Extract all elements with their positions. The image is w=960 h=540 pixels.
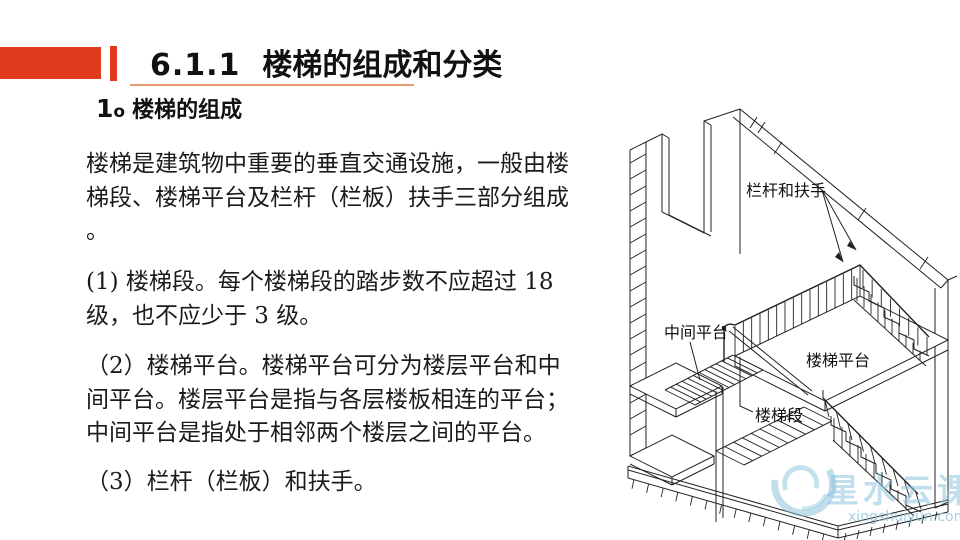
paragraph-handrail: （3）栏杆（栏板）和扶手。 (86, 466, 377, 500)
section-title: 楼梯的组成和分类 (262, 48, 502, 83)
accent-bar (0, 47, 101, 79)
back-wall (646, 109, 740, 254)
slide-canvas: 6.1.1楼梯的组成和分类 1o楼梯的组成 楼梯是建筑物中重要的垂直交通设施，一… (0, 0, 960, 540)
label-railing: 栏杆和扶手 (746, 181, 826, 200)
body-heading: 1o楼梯的组成 (96, 92, 242, 124)
watermark-logo (775, 468, 833, 514)
stair-diagram: 栏杆和扶手 中间平台 楼梯平台 楼梯段 星水云课 xingshuiyun.com (616, 104, 960, 540)
accent-tick (110, 46, 117, 81)
watermark: 星水云课 xingshuiyun.com (775, 468, 960, 525)
left-wall (630, 142, 646, 456)
label-mid-platform: 中间平台 (664, 323, 728, 342)
heading-label: 楼梯的组成 (132, 97, 242, 123)
label-floor-platform: 楼梯平台 (806, 351, 870, 370)
label-flight: 楼梯段 (755, 406, 803, 425)
paragraph-platform: （2）楼梯平台。楼梯平台可分为楼层平台和中间平台。楼层平台是指与各层楼板相连的平… (86, 350, 569, 451)
lower-platform-slab (630, 435, 714, 485)
watermark-brand: 星水云课 (826, 471, 960, 510)
heading-ordinal: o (113, 102, 125, 122)
slide-title: 6.1.1楼梯的组成和分类 (150, 40, 502, 84)
paragraph-flight: (1) 楼梯段。每个楼梯段的踏步数不应超过 18级，也不应少于 3 级。 (86, 266, 553, 333)
watermark-domain: xingshuiyun.com (848, 509, 960, 525)
heading-number: 1 (96, 94, 113, 123)
paragraph-intro: 楼梯是建筑物中重要的垂直交通设施，一般由楼梯段、楼梯平台及栏杆（栏板）扶手三部分… (86, 148, 569, 249)
section-number: 6.1.1 (150, 48, 240, 83)
title-underline (130, 84, 414, 86)
roof-ticks (774, 142, 928, 269)
